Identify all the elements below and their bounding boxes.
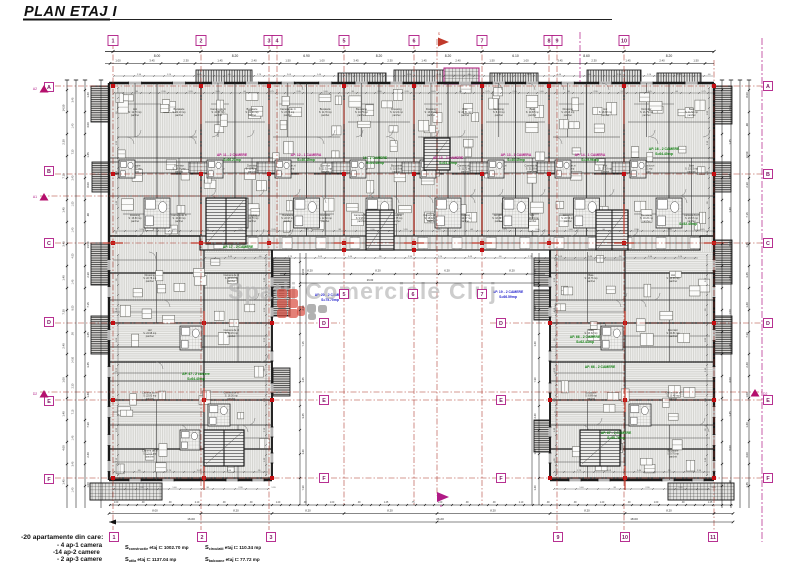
svg-text:S=52.45mp: S=52.45mp <box>679 222 697 226</box>
svg-text:-20 apartamente din care:: -20 apartamente din care: <box>21 534 103 541</box>
svg-text:5: 5 <box>343 292 346 298</box>
svg-text:7.30: 7.30 <box>72 149 75 154</box>
svg-text:8.20: 8.20 <box>375 269 381 273</box>
svg-text:1.45: 1.45 <box>86 152 90 158</box>
svg-text:parchet: parchet <box>284 220 292 223</box>
svg-text:S=40.45mp: S=40.45mp <box>297 158 315 162</box>
svg-text:6: 6 <box>412 292 415 298</box>
svg-text:7.15: 7.15 <box>301 341 305 347</box>
svg-text:4.00: 4.00 <box>72 253 75 258</box>
svg-text:1.00: 1.00 <box>330 502 335 504</box>
svg-text:1.45: 1.45 <box>745 482 749 488</box>
svg-text:parchet: parchet <box>427 114 435 117</box>
svg-text:1.20: 1.20 <box>276 502 281 504</box>
svg-text:- 2 ap-3 camere: - 2 ap-3 camere <box>57 556 103 563</box>
svg-text:2.30: 2.30 <box>62 139 66 145</box>
svg-text:parchet: parchet <box>146 456 154 459</box>
svg-text:S=64.40mp: S=64.40mp <box>655 152 673 156</box>
svg-text:B: B <box>47 169 51 175</box>
svg-text:3.45: 3.45 <box>86 362 90 368</box>
svg-text:3.45: 3.45 <box>149 58 155 62</box>
svg-text:3.45: 3.45 <box>557 58 563 62</box>
svg-text:1.00: 1.00 <box>523 58 529 62</box>
svg-text:1.40: 1.40 <box>72 123 75 128</box>
svg-text:1.20: 1.20 <box>600 502 605 504</box>
svg-text:26.00: 26.00 <box>367 278 374 282</box>
svg-text:parchet: parchet <box>248 114 256 117</box>
svg-text:1.45: 1.45 <box>533 269 537 275</box>
svg-text:1.00: 1.00 <box>115 58 121 62</box>
svg-text:1.40: 1.40 <box>62 275 66 281</box>
svg-text:parchet: parchet <box>528 220 536 223</box>
svg-text:1.40: 1.40 <box>533 341 537 347</box>
svg-text:10: 10 <box>622 535 628 541</box>
svg-text:A: A <box>766 84 770 90</box>
svg-text:AP. 11 - 2 CAMERE: AP. 11 - 2 CAMERE <box>217 153 248 157</box>
svg-text:D: D <box>322 321 326 327</box>
svg-text:AP. 16 - 2 CAMERE: AP. 16 - 2 CAMERE <box>649 147 680 151</box>
svg-text:3.45: 3.45 <box>353 58 359 62</box>
svg-text:2.40: 2.40 <box>72 175 75 180</box>
svg-text:1: 1 <box>112 39 115 45</box>
svg-text:1.00: 1.00 <box>654 502 659 504</box>
svg-text:2.30: 2.30 <box>301 305 305 311</box>
svg-text:8.00: 8.00 <box>86 182 90 188</box>
svg-text:1.40: 1.40 <box>301 449 305 455</box>
svg-text:PLAN ETAJ I: PLAN ETAJ I <box>24 4 118 20</box>
svg-text:S=40.45mp: S=40.45mp <box>507 158 525 162</box>
svg-text:6: 6 <box>413 39 416 45</box>
svg-text:2.40: 2.40 <box>62 343 66 349</box>
svg-text:14.50: 14.50 <box>745 151 749 158</box>
svg-text:C: C <box>47 241 51 247</box>
svg-text:parchet: parchet <box>321 220 329 223</box>
svg-text:parchet: parchet <box>393 114 401 117</box>
svg-text:1.40: 1.40 <box>728 207 732 213</box>
svg-text:parchet: parchet <box>461 220 469 223</box>
svg-text:4.00: 4.00 <box>62 445 66 451</box>
svg-text:8.20: 8.20 <box>307 269 313 273</box>
svg-text:S=66.59mp: S=66.59mp <box>499 295 517 299</box>
svg-text:3.45: 3.45 <box>745 272 749 278</box>
svg-text:parchet: parchet <box>669 335 677 338</box>
svg-text:S=62.44mp: S=62.44mp <box>576 340 594 344</box>
svg-text:1.45: 1.45 <box>745 242 749 248</box>
svg-text:1.45: 1.45 <box>72 435 75 440</box>
svg-text:1.40: 1.40 <box>72 487 75 492</box>
svg-text:14.50: 14.50 <box>72 356 75 363</box>
svg-text:8.20: 8.20 <box>666 508 672 512</box>
svg-text:1: 1 <box>113 535 116 541</box>
svg-text:7.30: 7.30 <box>728 241 732 247</box>
svg-text:B: B <box>440 504 442 508</box>
svg-text:7: 7 <box>481 39 484 45</box>
svg-text:4.00: 4.00 <box>745 452 749 458</box>
svg-text:AP. 13 - 1 CAMERA: AP. 13 - 1 CAMERA <box>501 153 532 157</box>
svg-text:S=64.40mp: S=64.40mp <box>366 161 384 165</box>
svg-text:8.00: 8.00 <box>152 508 158 512</box>
svg-text:1.00: 1.00 <box>728 309 732 315</box>
svg-text:2.40: 2.40 <box>86 452 90 458</box>
svg-text:1.50: 1.50 <box>693 58 699 62</box>
svg-text:8: 8 <box>548 39 551 45</box>
svg-text:2.10: 2.10 <box>519 502 524 504</box>
svg-text:parchet: parchet <box>175 220 183 223</box>
svg-text:parchet: parchet <box>131 220 139 223</box>
svg-text:1.40: 1.40 <box>72 227 75 232</box>
svg-text:1.45: 1.45 <box>72 279 75 284</box>
svg-text:2.30: 2.30 <box>72 383 75 388</box>
svg-text:3: 3 <box>268 39 271 45</box>
svg-text:parchet: parchet <box>358 220 366 223</box>
svg-text:1.45: 1.45 <box>421 58 427 62</box>
svg-text:A2: A2 <box>33 87 37 91</box>
svg-text:1.45: 1.45 <box>217 58 223 62</box>
svg-text:8.00: 8.00 <box>745 92 749 98</box>
svg-text:S=56.76mp: S=56.76mp <box>607 436 625 440</box>
svg-text:2.30: 2.30 <box>591 58 597 62</box>
svg-text:parchet: parchet <box>131 114 139 117</box>
svg-text:4.00: 4.00 <box>728 377 732 383</box>
svg-text:8.20: 8.20 <box>490 508 496 512</box>
svg-text:7.15: 7.15 <box>745 212 749 218</box>
svg-text:1.40: 1.40 <box>86 392 90 398</box>
svg-text:parchet: parchet <box>643 220 651 223</box>
svg-text:2.30: 2.30 <box>86 272 90 278</box>
svg-text:AP. 14 - 1 CAMERA: AP. 14 - 1 CAMERA <box>575 153 606 157</box>
svg-text:1.45: 1.45 <box>728 411 732 417</box>
svg-text:1.00: 1.00 <box>745 392 749 398</box>
svg-text:14.50: 14.50 <box>62 104 66 111</box>
svg-text:S=39.96mp: S=39.96mp <box>581 158 599 162</box>
svg-text:parchet: parchet <box>564 114 572 117</box>
svg-text:8.20: 8.20 <box>305 508 311 512</box>
svg-text:1.00: 1.00 <box>72 201 75 206</box>
svg-text:1.45: 1.45 <box>62 479 66 485</box>
svg-text:E: E <box>766 398 770 404</box>
svg-text:8.20: 8.20 <box>584 508 590 512</box>
svg-text:parchet: parchet <box>227 335 235 338</box>
svg-text:1.50: 1.50 <box>285 58 291 62</box>
svg-text:26.20: 26.20 <box>436 517 444 521</box>
svg-text:AP. 15 - 2 CAMERE: AP. 15 - 2 CAMERE <box>433 156 464 160</box>
svg-text:1.40: 1.40 <box>745 422 749 428</box>
svg-text:2: 2 <box>201 535 204 541</box>
svg-text:AP. 66 - 2 CAMERE: AP. 66 - 2 CAMERE <box>585 365 616 369</box>
svg-text:parchet: parchet <box>175 114 183 117</box>
svg-text:parchet: parchet <box>146 335 154 338</box>
svg-text:2.40: 2.40 <box>745 362 749 368</box>
svg-text:1.45: 1.45 <box>384 502 389 504</box>
svg-text:parchet: parchet <box>214 114 222 117</box>
svg-text:parchet: parchet <box>358 114 366 117</box>
svg-text:1.45: 1.45 <box>62 207 66 213</box>
svg-text:parchet: parchet <box>461 114 469 117</box>
svg-text:1.40: 1.40 <box>728 343 732 349</box>
svg-text:S=64.40mp: S=64.40mp <box>187 377 205 381</box>
svg-text:1.00: 1.00 <box>533 449 537 455</box>
svg-text:7.30: 7.30 <box>62 309 66 315</box>
svg-text:Spatii Comerciale Cluj: Spatii Comerciale Cluj <box>228 278 497 304</box>
svg-text:1.40: 1.40 <box>62 411 66 417</box>
svg-text:3: 3 <box>270 535 273 541</box>
svg-text:7.30: 7.30 <box>301 485 305 491</box>
svg-text:1.50: 1.50 <box>489 58 495 62</box>
svg-text:E: E <box>499 398 503 404</box>
svg-text:parchet: parchet <box>601 114 609 117</box>
svg-text:.90: .90 <box>86 213 90 217</box>
svg-text:1.00: 1.00 <box>86 482 90 488</box>
svg-text:1.45: 1.45 <box>86 332 90 338</box>
svg-text:.90: .90 <box>728 480 732 484</box>
svg-text:8.20: 8.20 <box>509 269 515 273</box>
svg-text:B: B <box>766 172 770 178</box>
svg-text:7.15: 7.15 <box>72 409 75 414</box>
svg-text:2.40: 2.40 <box>533 413 537 419</box>
svg-text:8.60: 8.60 <box>583 54 590 58</box>
svg-text:parchet: parchet <box>495 220 503 223</box>
svg-text:parchet: parchet <box>321 114 329 117</box>
svg-text:parchet: parchet <box>669 456 677 459</box>
svg-text:D: D <box>499 321 503 327</box>
svg-text:D2: D2 <box>33 392 37 396</box>
svg-text:6.10: 6.10 <box>512 54 519 58</box>
svg-text:16 - 2 CAMERE: 16 - 2 CAMERE <box>363 156 388 160</box>
svg-text:AP. 19 - 2 CAMERE: AP. 19 - 2 CAMERE <box>493 290 524 294</box>
svg-text:6.20: 6.20 <box>444 269 450 273</box>
svg-text:8.00: 8.00 <box>728 445 732 451</box>
svg-text:2: 2 <box>200 39 203 45</box>
svg-text:5: 5 <box>343 39 346 45</box>
svg-text:2.30: 2.30 <box>745 182 749 188</box>
svg-text:2.10: 2.10 <box>195 502 200 504</box>
svg-text:16.00: 16.00 <box>187 517 195 521</box>
svg-text:14.50: 14.50 <box>86 241 90 248</box>
svg-text:parchet: parchet <box>248 220 256 223</box>
svg-text:3.45: 3.45 <box>62 241 66 247</box>
svg-text:D2: D2 <box>763 392 767 396</box>
svg-text:1.45: 1.45 <box>625 58 631 62</box>
svg-text:parchet: parchet <box>587 280 595 283</box>
svg-text:8.20: 8.20 <box>666 54 673 58</box>
svg-text:parchet: parchet <box>564 220 572 223</box>
svg-text:S=66.21mp: S=66.21mp <box>223 158 241 162</box>
svg-text:.90: .90 <box>745 123 749 127</box>
svg-text:18.00: 18.00 <box>630 517 638 521</box>
svg-text:2.30: 2.30 <box>183 58 189 62</box>
svg-text:8.20: 8.20 <box>233 508 239 512</box>
svg-text:parchet: parchet <box>643 114 651 117</box>
svg-text:D: D <box>766 321 770 327</box>
svg-text:9: 9 <box>557 535 560 541</box>
svg-text:E: E <box>322 398 326 404</box>
svg-text:A: A <box>47 85 51 91</box>
svg-text:C: C <box>766 241 770 247</box>
svg-text:10: 10 <box>621 39 627 45</box>
svg-text:9: 9 <box>556 39 559 45</box>
svg-text:4.00: 4.00 <box>86 122 90 128</box>
svg-text:11: 11 <box>710 535 716 541</box>
svg-text:6.90: 6.90 <box>303 54 310 58</box>
svg-text:- 4 ap-1 camera: - 4 ap-1 camera <box>57 542 103 549</box>
svg-text:1.00: 1.00 <box>114 502 119 504</box>
svg-text:1.45: 1.45 <box>301 377 305 383</box>
svg-text:2.40: 2.40 <box>659 58 665 62</box>
svg-text:3.45: 3.45 <box>72 461 75 466</box>
svg-text:8.00: 8.00 <box>72 305 75 310</box>
svg-text:3.45: 3.45 <box>533 305 537 311</box>
svg-text:7.30: 7.30 <box>86 422 90 428</box>
svg-text:8.00: 8.00 <box>154 54 161 58</box>
svg-text:7: 7 <box>481 292 484 298</box>
svg-text:3.45: 3.45 <box>728 173 732 179</box>
svg-text:7.30: 7.30 <box>745 332 749 338</box>
svg-text:AP. 66 - 2 CAMERE: AP. 66 - 2 CAMERE <box>570 335 601 339</box>
svg-text:D: D <box>47 320 51 326</box>
svg-text:2.30: 2.30 <box>387 58 393 62</box>
svg-text:1.00: 1.00 <box>319 58 325 62</box>
svg-text:7.15: 7.15 <box>62 173 66 179</box>
svg-text:1.45: 1.45 <box>728 139 732 145</box>
svg-text:A1: A1 <box>33 195 37 199</box>
svg-text:3.45: 3.45 <box>301 413 305 419</box>
svg-text:2.40: 2.40 <box>251 58 257 62</box>
svg-text:1.45: 1.45 <box>708 502 713 504</box>
svg-text:-14 ap-2 camere: -14 ap-2 camere <box>53 549 100 556</box>
svg-text:1.00: 1.00 <box>62 377 66 383</box>
svg-text:7.30: 7.30 <box>533 377 537 383</box>
svg-text:7.15: 7.15 <box>86 302 90 308</box>
svg-text:parchet: parchet <box>688 114 696 117</box>
svg-text:parchet: parchet <box>284 114 292 117</box>
svg-text:parchet: parchet <box>495 114 503 117</box>
svg-text:7.15: 7.15 <box>728 105 732 111</box>
svg-text:8.20: 8.20 <box>232 54 239 58</box>
svg-text:AP. 17 - 2 CAMERE: AP. 17 - 2 CAMERE <box>223 245 254 249</box>
svg-text:8.20: 8.20 <box>387 508 393 512</box>
svg-text:AP. 67 - 2 CAMERE: AP. 67 - 2 CAMERE <box>601 431 632 435</box>
svg-text:AP. 12 - 1 CAMERA: AP. 12 - 1 CAMERA <box>291 153 322 157</box>
svg-text:AP. 47 - 2 camere: AP. 47 - 2 camere <box>182 372 210 376</box>
svg-text:parchet: parchet <box>669 280 677 283</box>
svg-text:2.40: 2.40 <box>728 275 732 281</box>
svg-text:parchet: parchet <box>146 280 154 283</box>
svg-text:1.40: 1.40 <box>86 92 90 98</box>
svg-text:2.40: 2.40 <box>455 58 461 62</box>
svg-text:3.45: 3.45 <box>72 97 75 102</box>
svg-text:1.40: 1.40 <box>533 485 537 491</box>
svg-text:E: E <box>47 399 51 405</box>
svg-text:8.20: 8.20 <box>445 54 452 58</box>
svg-text:8.20: 8.20 <box>376 54 383 58</box>
svg-text:4: 4 <box>276 39 279 45</box>
svg-text:parchet: parchet <box>528 114 536 117</box>
svg-text:1.40: 1.40 <box>745 302 749 308</box>
svg-text:S: S <box>438 32 440 36</box>
svg-text:parchet: parchet <box>427 220 435 223</box>
svg-text:S=64.40mp: S=64.40mp <box>439 161 457 165</box>
